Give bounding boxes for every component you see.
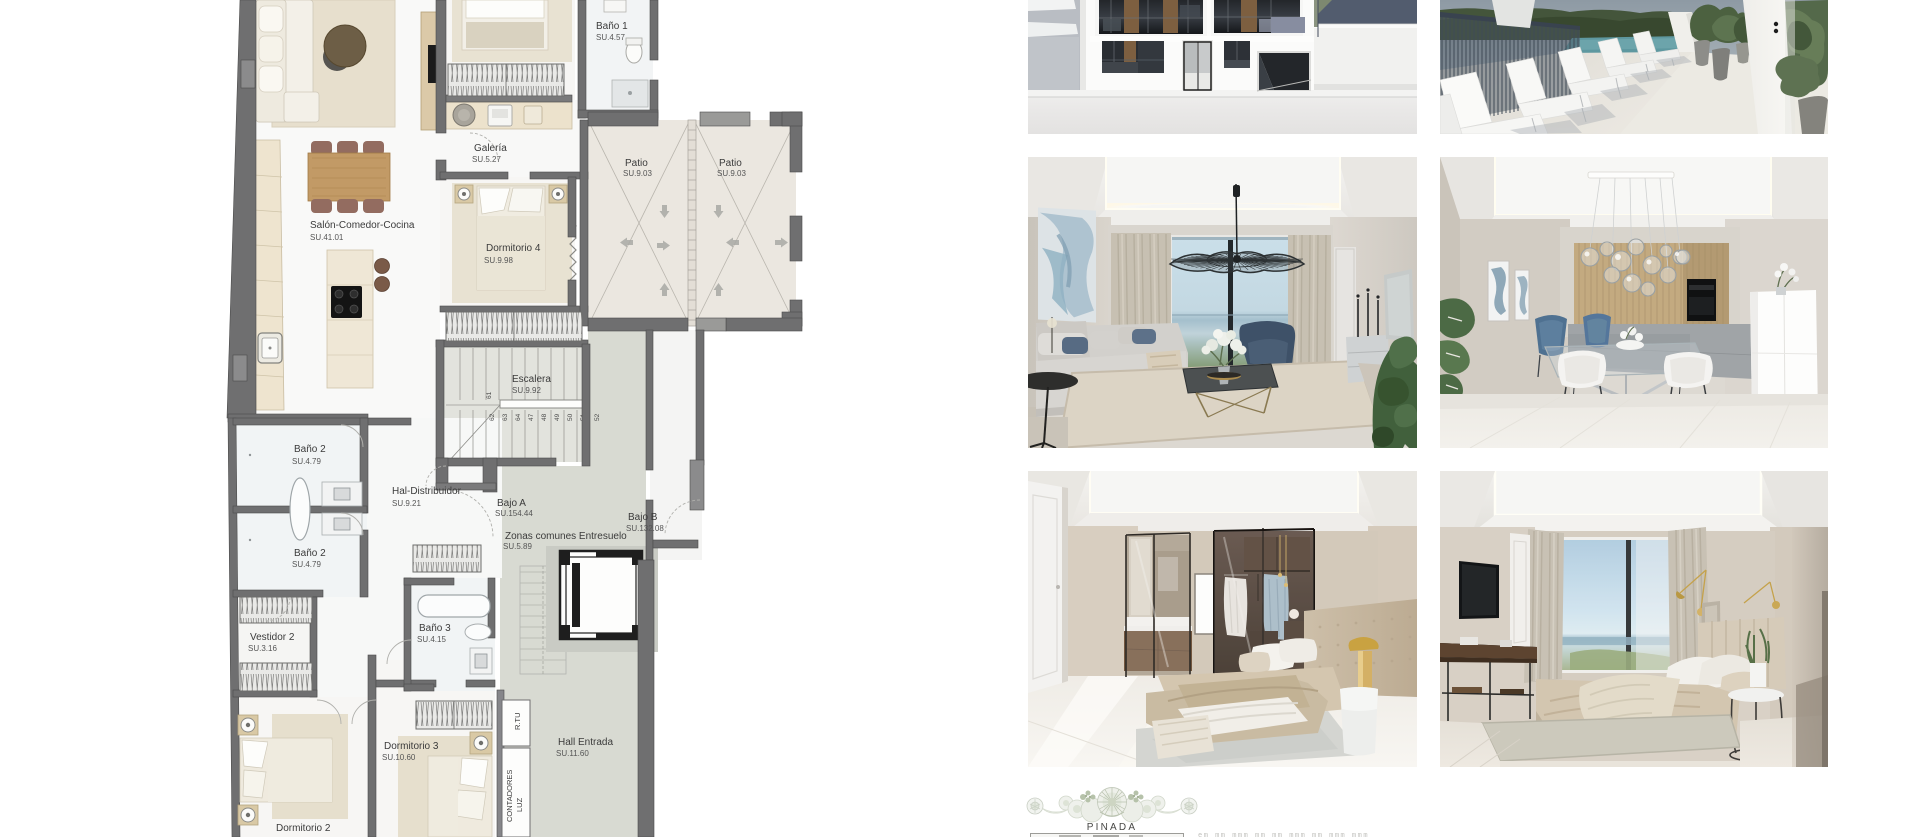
svg-text:63: 63 [502,413,509,421]
svg-text:49: 49 [554,413,561,421]
svg-text:52: 52 [594,413,601,421]
svg-text:Baño 2: Baño 2 [294,444,326,455]
svg-text:SU.10.60: SU.10.60 [382,753,416,762]
svg-text:Dormitorio 2: Dormitorio 2 [276,823,331,834]
svg-text:Patio: Patio [625,158,648,169]
svg-text:CONTADORES: CONTADORES [505,770,514,822]
svg-text:SU.9.03: SU.9.03 [623,169,652,178]
svg-text:48: 48 [541,413,548,421]
svg-text:Escalera: Escalera [512,374,551,385]
svg-text:SU.5.89: SU.5.89 [503,542,532,551]
svg-text:SU.9.03: SU.9.03 [717,169,746,178]
svg-text:R.TU: R.TU [513,713,522,731]
svg-text:SU.4.79: SU.4.79 [292,560,321,569]
svg-text:SU.9.92: SU.9.92 [512,386,541,395]
svg-text:SU.3.16: SU.3.16 [248,644,277,653]
svg-text:Hall Entrada: Hall Entrada [558,737,613,748]
svg-text:SU.9.98: SU.9.98 [484,256,513,265]
svg-text:Dormitorio 4: Dormitorio 4 [486,243,541,254]
svg-text:47: 47 [528,413,535,421]
svg-text:SU.9.21: SU.9.21 [392,499,421,508]
svg-text:SU.41.01: SU.41.01 [310,233,344,242]
svg-text:Salón-Comedor-Cocina: Salón-Comedor-Cocina [310,220,415,231]
svg-text:LUZ: LUZ [515,797,524,812]
svg-text:Bajo A: Bajo A [497,498,526,509]
svg-text:Vestidor 2: Vestidor 2 [250,632,295,643]
svg-text:PINADA: PINADA [1087,822,1137,833]
svg-text:Patio: Patio [719,158,742,169]
svg-text:Baño 3: Baño 3 [419,623,451,634]
svg-text:Bajo B: Bajo B [628,512,658,523]
svg-text:SU.5.27: SU.5.27 [472,155,501,164]
svg-text:Zonas comunes Entresuelo: Zonas comunes Entresuelo [505,531,627,542]
svg-text:SU.4.15: SU.4.15 [417,635,446,644]
svg-text:64: 64 [515,413,522,421]
svg-text:SU.11.60: SU.11.60 [556,749,589,758]
svg-text:SU.4.57: SU.4.57 [596,33,625,42]
svg-text:SU.4.79: SU.4.79 [292,457,321,466]
svg-text:Baño 2: Baño 2 [294,548,326,559]
svg-text:Baño 1: Baño 1 [596,21,628,32]
svg-text:61: 61 [486,391,493,399]
svg-text:SU.154.44: SU.154.44 [495,509,533,518]
svg-text:62: 62 [489,413,496,421]
svg-text:50: 50 [567,413,574,421]
svg-text:Galería: Galería [474,143,507,154]
svg-text:SU.132.08: SU.132.08 [626,524,664,533]
svg-text:Hal-Distribuidor: Hal-Distribuidor [392,486,462,497]
svg-text:Dormitorio 3: Dormitorio 3 [384,741,439,752]
